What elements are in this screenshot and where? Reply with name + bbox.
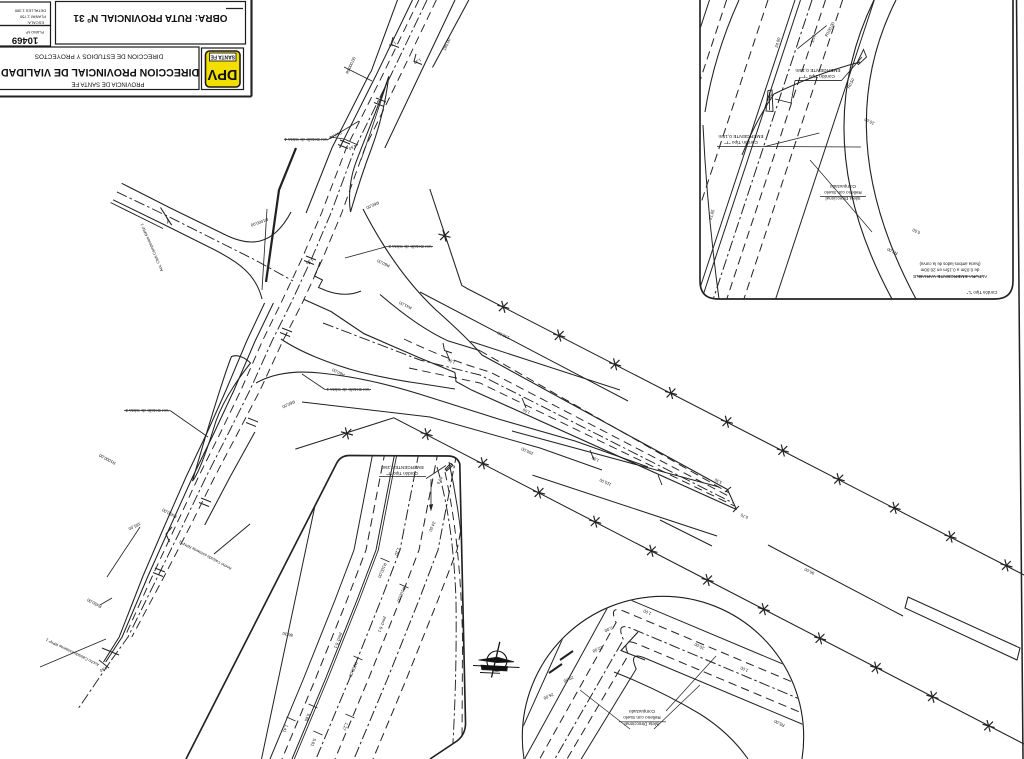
svg-text:10469: 10469 — [12, 35, 38, 46]
svg-text:EMERGENTE 0,15m: EMERGENTE 0,15m — [718, 133, 763, 139]
svg-text:de 0.03m a 0.15m en 20.00m: de 0.03m a 0.15m en 20.00m — [920, 268, 979, 273]
svg-text:Relleno con Suelo: Relleno con Suelo — [824, 190, 862, 195]
svg-text:DPV: DPV — [207, 66, 237, 82]
svg-text:PROVINCIA DE SANTA FE: PROVINCIA DE SANTA FE — [72, 81, 145, 87]
svg-text:Cordón Tipo "T": Cordón Tipo "T" — [386, 471, 418, 476]
svg-text:DIRECCION DE ESTUDIOS Y PROYEC: DIRECCION DE ESTUDIOS Y PROYECTOS — [35, 53, 164, 60]
svg-text:EMERGENTE 0,15m: EMERGENTE 0,15m — [795, 67, 840, 73]
svg-text:Relleno con Suelo: Relleno con Suelo — [623, 715, 661, 720]
svg-text:Cordón Tipo "T": Cordón Tipo "T" — [724, 139, 758, 145]
svg-text:EMERGENTE 0,15m: EMERGENTE 0,15m — [381, 465, 424, 470]
svg-text:Compactado: Compactado — [830, 184, 856, 189]
svg-text:OBRA: RUTA PROVINCIAL Nº 31: OBRA: RUTA PROVINCIAL Nº 31 — [73, 12, 227, 23]
svg-text:DETALLES 1:300: DETALLES 1:300 — [14, 9, 46, 14]
svg-text:SANTA FE: SANTA FE — [210, 54, 235, 60]
svg-text:ESCALA:: ESCALA: — [27, 21, 44, 26]
svg-text:Compactado: Compactado — [629, 709, 655, 714]
svg-text:PLANIM 1:750: PLANIM 1:750 — [19, 15, 46, 20]
svg-text:Cordón Tipo "L": Cordón Tipo "L" — [966, 290, 997, 295]
svg-text:Cordón Tipo "T": Cordón Tipo "T" — [801, 73, 835, 79]
svg-text:DIRECCION PROVINCIAL DE VIALID: DIRECCION PROVINCIAL DE VIALIDAD — [1, 66, 200, 78]
svg-text:PLANO Nº: PLANO Nº — [25, 30, 44, 34]
svg-text:(hacia ambos lados de la curva: (hacia ambos lados de la curva) — [919, 262, 980, 267]
